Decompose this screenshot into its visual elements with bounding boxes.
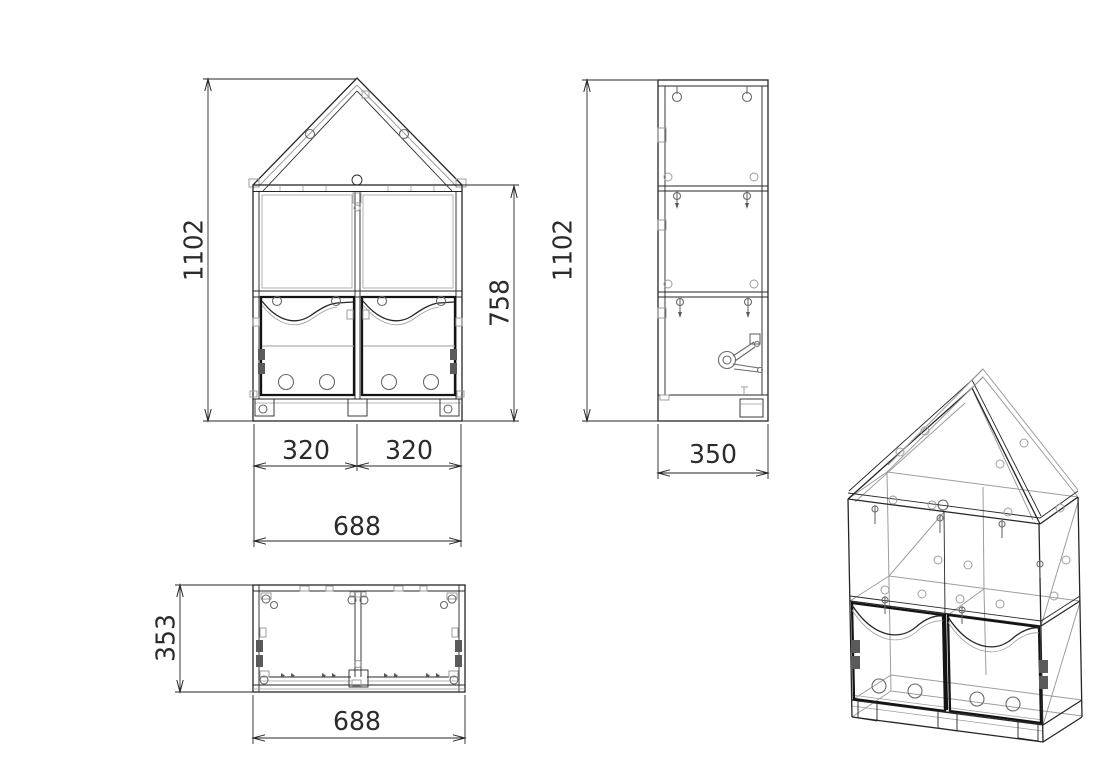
- dim-top-total-width: 688: [333, 707, 381, 737]
- side-view: 1102 350: [549, 80, 768, 479]
- dim-side-total-height: 1102: [549, 219, 579, 281]
- technical-drawing-canvas: 1102 758 320 320 688: [0, 0, 1106, 759]
- front-view: 1102 758 320 320 688: [180, 78, 519, 547]
- front-door-hinges: [258, 349, 457, 374]
- dim-front-total-width: 688: [333, 512, 381, 542]
- dim-side-depth: 350: [689, 440, 737, 470]
- front-dimensions: 1102 758 320 320 688: [180, 79, 519, 547]
- top-fittings: [256, 586, 462, 687]
- dim-top-depth: 353: [152, 614, 182, 662]
- technical-drawing-page: 1102 758 320 320 688: [0, 0, 1106, 759]
- iso-doors: [851, 603, 1048, 723]
- front-roof: [249, 78, 466, 191]
- side-fasteners: [664, 86, 758, 318]
- top-view: 353 688: [152, 585, 465, 744]
- side-hinge-detail: [719, 334, 763, 373]
- front-doors: [253, 297, 462, 396]
- dim-front-total-height: 1102: [180, 219, 210, 281]
- dim-front-door-left: 320: [282, 436, 330, 466]
- isometric-view: [848, 369, 1082, 742]
- dim-front-body-height: 758: [486, 279, 516, 327]
- top-dimensions: 353 688: [152, 585, 465, 744]
- iso-roof: [848, 369, 1078, 524]
- dim-front-door-right: 320: [385, 436, 433, 466]
